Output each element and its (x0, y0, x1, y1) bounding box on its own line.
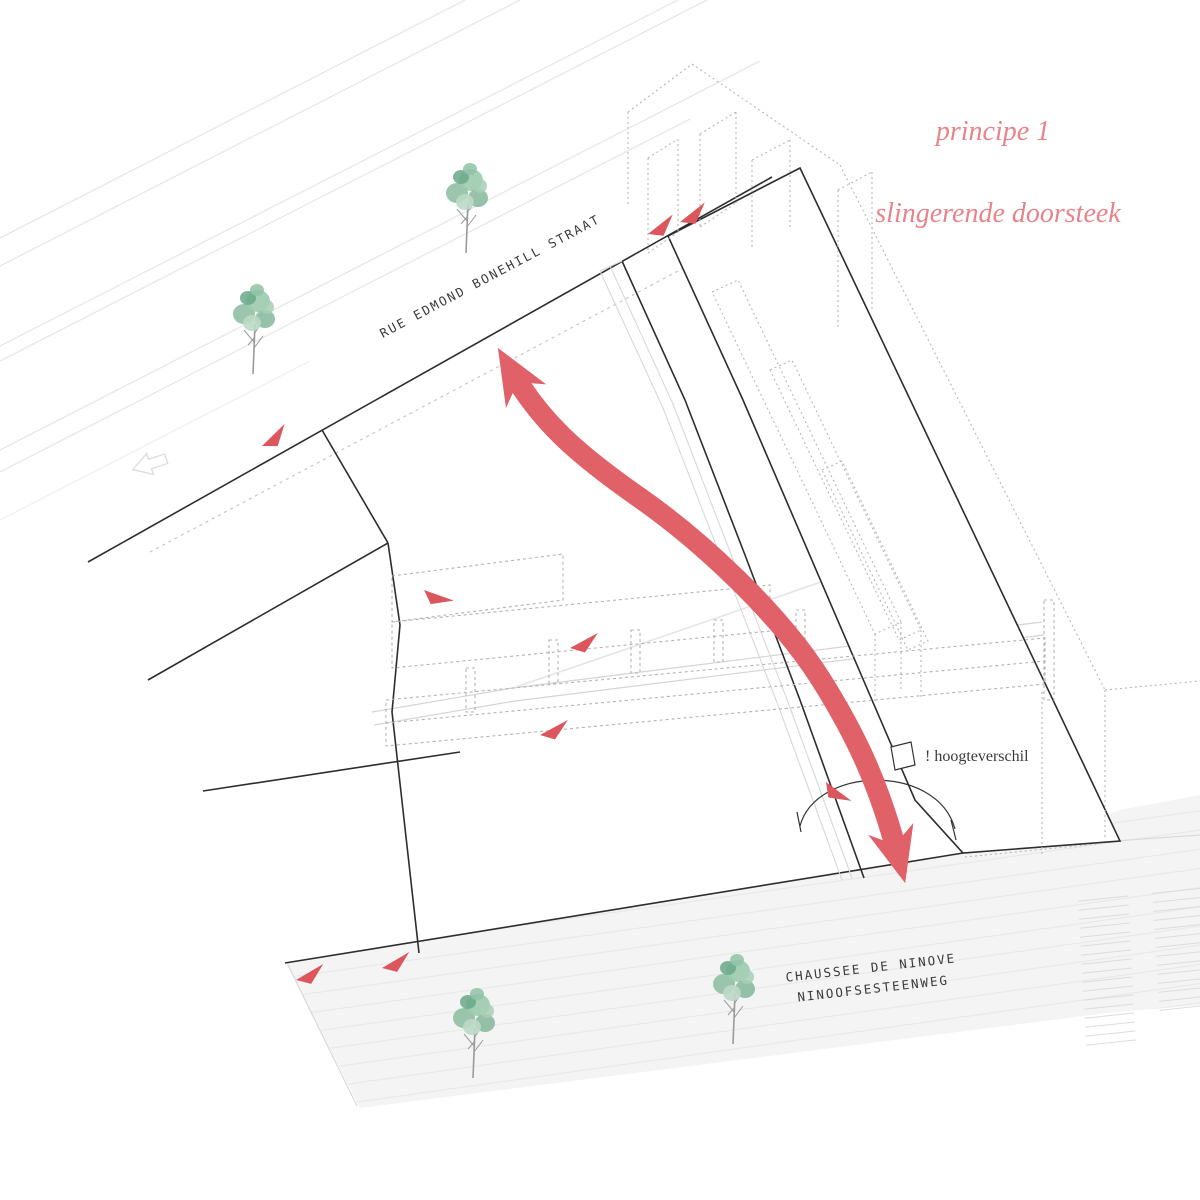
direction-triangle-icon (568, 633, 600, 655)
drawing-svg (0, 0, 1200, 1200)
height-step (891, 742, 915, 770)
column-post (549, 640, 558, 683)
column-post (466, 668, 475, 712)
direction-triangle-icon (538, 720, 570, 742)
column-post (714, 620, 723, 662)
direction-triangle-icon (420, 582, 454, 614)
column-post (631, 630, 640, 673)
site-ink-lines (88, 168, 1120, 963)
diagram-subtitle: slingerende doorsteek (875, 198, 1120, 230)
diagram-title: principe 1 (936, 116, 1050, 148)
height-difference-label: ! hoogteverschil (925, 748, 1029, 766)
crosswalk-hatch-strip (1078, 893, 1136, 1048)
tree-icon (233, 284, 275, 374)
direction-triangle-icon (258, 424, 292, 452)
site-axonometric-diagram: RUE EDMOND BONEHILL STRAAT CHAUSSEE DE N… (0, 0, 1200, 1200)
street-top-lines (0, 0, 760, 520)
crosswalk-hatch-strip (1152, 886, 1200, 1016)
tree-icon (446, 163, 488, 253)
street-direction-arrow-icon (129, 448, 169, 480)
